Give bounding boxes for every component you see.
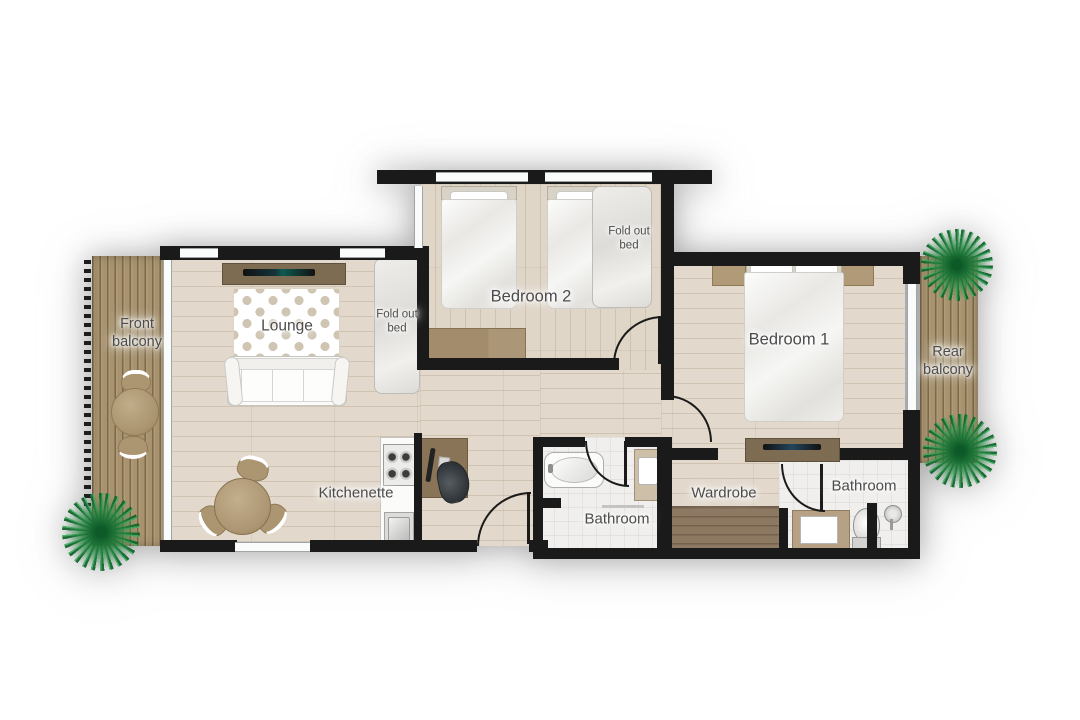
stove [383, 444, 415, 486]
sofa-cushion-2 [272, 369, 304, 402]
sofa-cushion-3 [303, 369, 335, 402]
balcony-chair-bottom [118, 436, 148, 459]
wall-bedroom1-right-top [903, 252, 920, 284]
window-bedroom2-top-left [436, 172, 528, 182]
front-balcony-label: Front balcony [100, 315, 174, 351]
fold-out-bed-bedroom2-label: Fold out bed [606, 225, 652, 254]
wardrobe-label: Wardrobe [691, 485, 756, 504]
dining-table [214, 478, 271, 535]
bathroom-main-basin [638, 457, 658, 485]
bedroom1-tv-cabinet [745, 438, 840, 462]
kitchenette-label: Kitchenette [318, 485, 393, 504]
wall-bedroom1-bottom-left [661, 448, 718, 460]
shower-head [884, 505, 902, 523]
entry-door-leaf [527, 492, 530, 544]
wall-bathroom-main-bottom [533, 548, 672, 559]
bathroom-second-basin [800, 516, 838, 544]
window-lounge-balcony [163, 260, 172, 540]
bathroom-second-door-leaf [820, 464, 823, 510]
sofa-cushion-1 [241, 369, 273, 402]
wardrobe-unit [670, 506, 779, 549]
front-balcony-plant [62, 493, 140, 571]
wall-bathroom-main-duct-h [543, 498, 561, 508]
tv-screen [243, 269, 315, 276]
rear-balcony-plant-bottom [923, 414, 997, 488]
wall-bedroom2-bottom [417, 358, 619, 370]
wall-kitchen-partition [414, 433, 422, 540]
wall-bathroom-main-top-left [533, 437, 585, 447]
wall-wardrobe-bathroom-divider [779, 508, 788, 548]
fold-out-bed-lounge-label: Fold out bed [374, 308, 420, 337]
balcony-table [111, 388, 159, 436]
window-lounge-top-left [180, 248, 218, 258]
wall-lounge-bottom-left [160, 540, 237, 552]
wall-bedroom1-top [661, 252, 915, 266]
wall-shower-stub [867, 503, 877, 548]
floor-plan-stage: Front balcony Lounge Fold out bed Bedroo… [0, 0, 1080, 720]
bedroom1-tv-screen [763, 444, 821, 450]
bedroom2-bench [428, 328, 526, 362]
bathroom-second-label: Bathroom [831, 478, 896, 497]
bathtub-tap [548, 464, 553, 473]
window-lounge-bottom [235, 542, 310, 552]
wall-bathroom-main-duct-v [533, 498, 543, 548]
apartment-floor-plan: Front balcony Lounge Fold out bed Bedroo… [0, 0, 1080, 720]
wall-bottom-right-row [661, 548, 920, 559]
lounge-label: Lounge [261, 316, 313, 335]
rear-balcony-label: Rear balcony [911, 343, 985, 379]
bedroom2-label: Bedroom 2 [491, 287, 572, 308]
window-lounge-top-right [340, 248, 385, 258]
window-bedroom2-left [414, 186, 423, 248]
shower-stem [890, 519, 893, 530]
bathroom-main-towel-rail [602, 505, 644, 508]
front-balcony-railing [84, 260, 91, 506]
wall-lounge-bottom-mid [310, 540, 477, 552]
rear-balcony-plant-top [921, 229, 993, 301]
window-bedroom2-top-right [545, 172, 652, 182]
bathroom-main-label: Bathroom [584, 511, 649, 530]
bathroom-main-door-leaf [624, 441, 627, 485]
bedroom1-label: Bedroom 1 [749, 330, 830, 351]
bedroom2-door-leaf [658, 316, 661, 364]
